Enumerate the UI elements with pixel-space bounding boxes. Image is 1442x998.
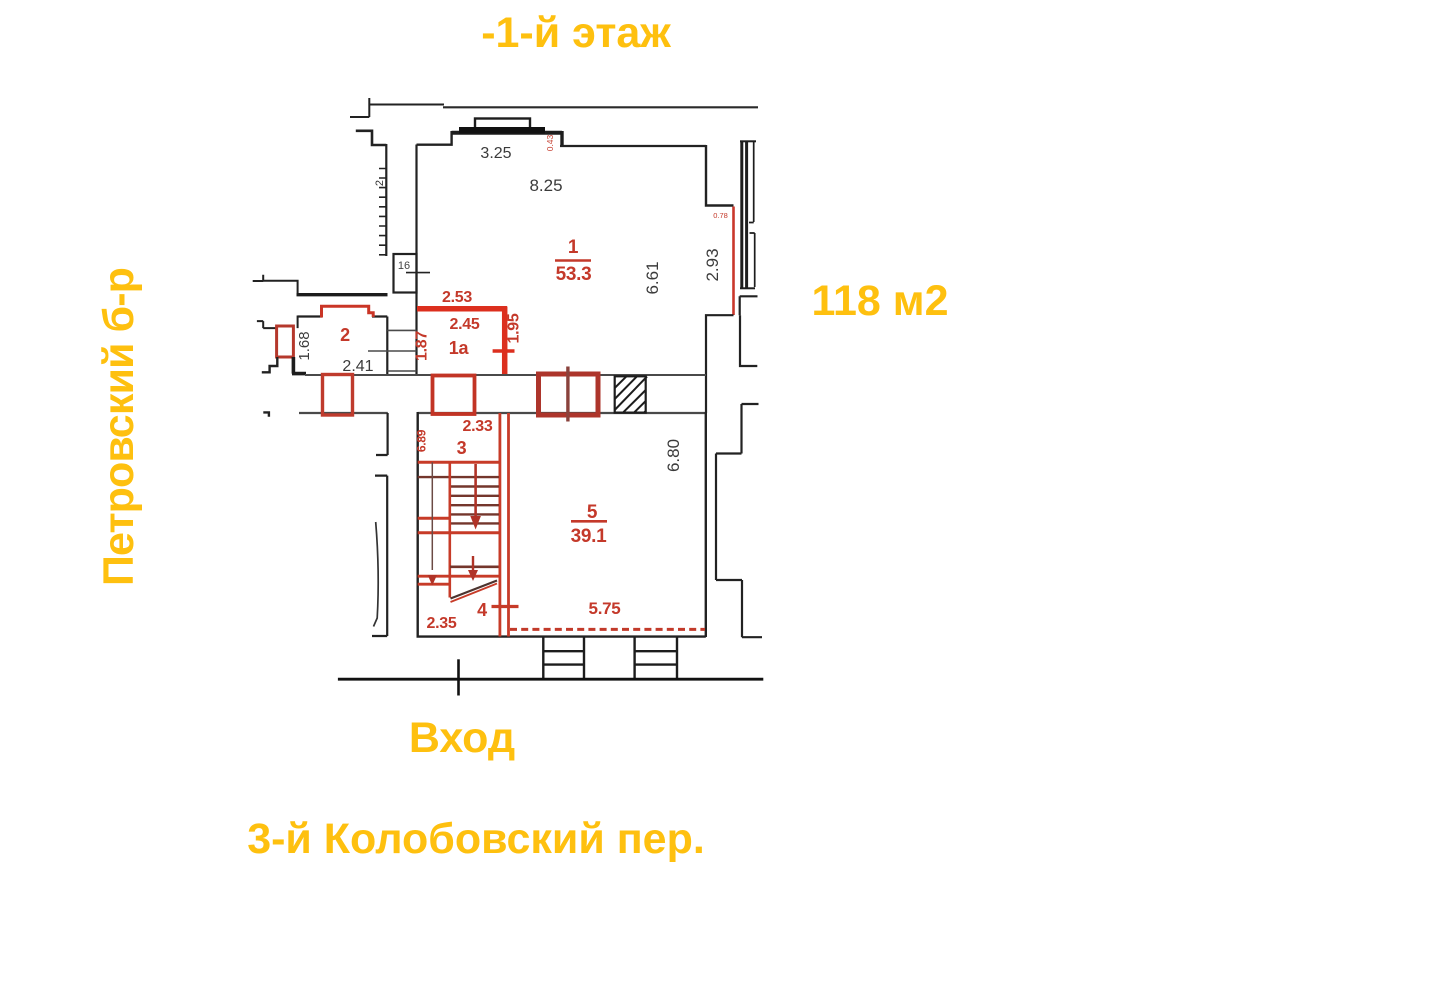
svg-text:2.33: 2.33: [463, 418, 493, 435]
svg-text:8.25: 8.25: [529, 176, 562, 195]
svg-text:2: 2: [374, 180, 386, 186]
svg-text:Вход: Вход: [409, 714, 515, 762]
svg-text:6.61: 6.61: [643, 261, 662, 294]
svg-text:1a: 1a: [449, 338, 470, 358]
svg-text:4: 4: [477, 600, 487, 620]
svg-text:-1-й этаж: -1-й этаж: [481, 9, 671, 57]
svg-text:2.93: 2.93: [703, 248, 722, 281]
svg-text:1: 1: [568, 237, 579, 258]
svg-text:Петровский б-р: Петровский б-р: [95, 268, 143, 586]
svg-text:3-й Колобовский пер.: 3-й Колобовский пер.: [247, 815, 705, 863]
svg-text:1.68: 1.68: [296, 331, 313, 360]
svg-text:5.75: 5.75: [589, 599, 621, 618]
svg-text:3: 3: [457, 438, 467, 458]
svg-text:3.25: 3.25: [480, 145, 511, 162]
svg-text:53.3: 53.3: [556, 264, 592, 285]
svg-text:5: 5: [587, 502, 598, 523]
svg-text:1.95: 1.95: [506, 313, 523, 343]
svg-text:118 м2: 118 м2: [811, 277, 948, 325]
svg-text:2.41: 2.41: [342, 358, 373, 375]
svg-text:39.1: 39.1: [571, 526, 608, 547]
svg-text:2.53: 2.53: [442, 289, 472, 306]
svg-text:2.35: 2.35: [427, 615, 457, 632]
svg-text:16: 16: [398, 260, 410, 272]
svg-text:0.78: 0.78: [713, 211, 728, 220]
svg-text:2: 2: [340, 325, 350, 345]
svg-text:0.43: 0.43: [545, 134, 555, 151]
svg-text:1.87: 1.87: [414, 331, 431, 361]
svg-text:6.89: 6.89: [415, 429, 429, 452]
svg-text:2.45: 2.45: [450, 316, 480, 333]
svg-text:6.80: 6.80: [664, 439, 683, 472]
